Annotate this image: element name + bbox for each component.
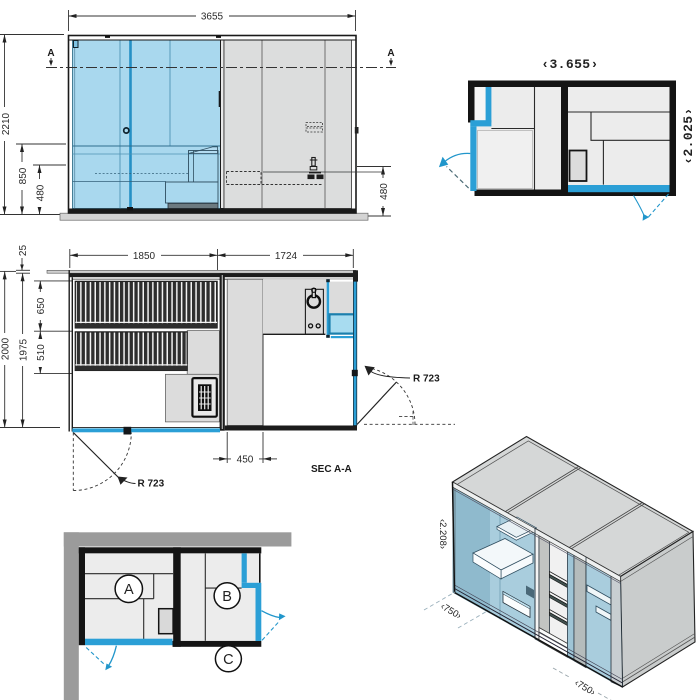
svg-text:450: 450 — [237, 455, 254, 466]
svg-text:1975: 1975 — [18, 338, 29, 361]
svg-text:A: A — [47, 48, 54, 59]
svg-text:‹2.025›: ‹2.025› — [681, 107, 696, 164]
svg-text:‹3.655›: ‹3.655› — [541, 57, 598, 72]
svg-text:SEC A-A: SEC A-A — [311, 464, 352, 475]
svg-text:B: B — [222, 589, 232, 605]
svg-text:510: 510 — [36, 344, 47, 361]
svg-text:R 723: R 723 — [138, 479, 165, 490]
svg-text:‹2.208›: ‹2.208› — [437, 519, 448, 549]
svg-text:850: 850 — [18, 167, 29, 184]
svg-text:2000: 2000 — [0, 337, 11, 360]
svg-text:25: 25 — [18, 245, 29, 257]
svg-text:C: C — [223, 652, 233, 668]
svg-text:3655: 3655 — [201, 12, 224, 23]
svg-text:650: 650 — [36, 297, 47, 314]
svg-text:1850: 1850 — [133, 251, 156, 262]
svg-text:480: 480 — [379, 183, 390, 200]
svg-text:480: 480 — [35, 184, 46, 201]
svg-text:2210: 2210 — [1, 112, 12, 135]
svg-text:R 723: R 723 — [413, 374, 440, 385]
svg-text:A: A — [124, 582, 134, 598]
svg-text:A: A — [387, 48, 394, 59]
svg-text:1724: 1724 — [275, 251, 298, 262]
